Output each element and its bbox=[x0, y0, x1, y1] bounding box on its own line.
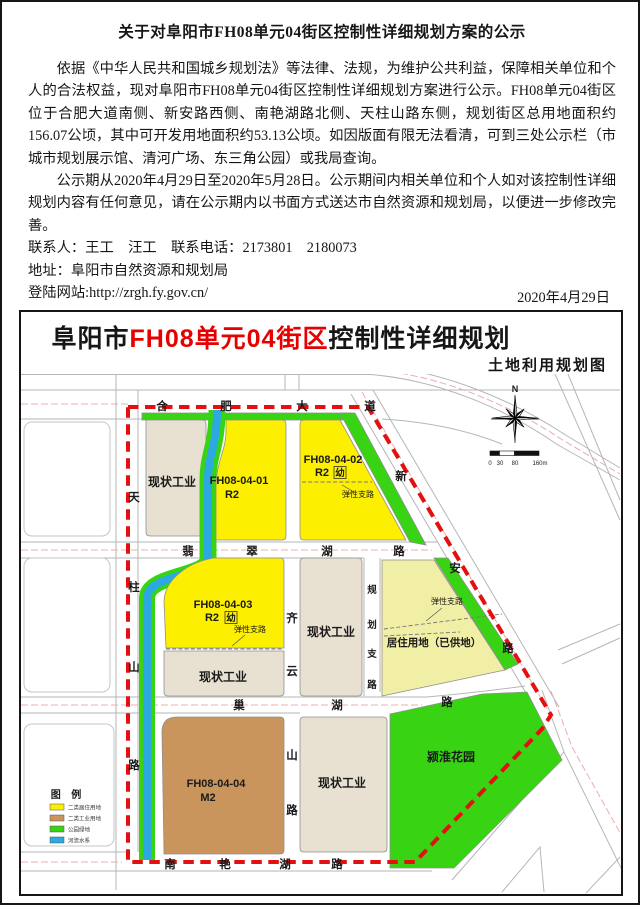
road-label-qiyunshan-road: 齐 bbox=[286, 611, 298, 625]
road-label-chaohu-road: 湖 bbox=[331, 698, 343, 712]
scale-bar: 03080160m bbox=[488, 451, 547, 467]
label-yinghuai-garden: 颍淮花园 bbox=[427, 749, 475, 764]
legend-label: 二类工业用地 bbox=[68, 815, 102, 823]
road-label-xinan-road: 安 bbox=[449, 561, 461, 575]
road-label-feicuihu-road: 翡 bbox=[182, 544, 194, 558]
legend-swatch bbox=[50, 826, 64, 832]
legend-title: 图 例 bbox=[51, 788, 86, 801]
legend-label: 二类居住用地 bbox=[68, 804, 102, 812]
public-notice-page: 关于对阜阳市FH08单元04街区控制性详细规划方案的公示 依据《中华人民共和国城… bbox=[0, 0, 640, 905]
compass-rose-icon: N bbox=[491, 384, 539, 443]
map-title-highlight: FH08单元04街区 bbox=[130, 325, 329, 353]
compass-north-label: N bbox=[512, 384, 519, 394]
road-label-tianzhushan-road: 山 bbox=[128, 660, 140, 674]
notice-title: 关于对阜阳市FH08单元04街区控制性详细规划方案的公示 bbox=[28, 20, 616, 42]
parcel-code-fh08-04-04: FH08-04-04 bbox=[187, 778, 247, 790]
road-label-hefei-avenue: 道 bbox=[364, 399, 376, 413]
map-title-prefix: 阜阳市 bbox=[52, 325, 130, 353]
road-label-tianzhushan-road: 天 bbox=[128, 491, 140, 504]
road-label-chaohu-road: 巢 bbox=[232, 698, 245, 712]
road-label-planned-branch-road: 支 bbox=[366, 648, 377, 660]
road-label-hefei-avenue: 肥 bbox=[220, 399, 232, 413]
scale-bar-segment bbox=[490, 451, 500, 456]
road-label-hefei-avenue: 大 bbox=[296, 399, 308, 413]
label-residential-supplied: 居住用地（已供地） bbox=[387, 636, 482, 649]
map-canvas: N 03080160m 图 例 二类居住用地二类工业用地公园绿地河流水系 合肥大… bbox=[21, 374, 621, 894]
road-label-nanyanhu-road: 艳 bbox=[219, 857, 231, 871]
website-line: 登陆网站:http://zrgh.fy.gov.cn/ bbox=[28, 282, 208, 304]
contact-line: 联系人：王工 汪工 联系电话：2173801 2180073 bbox=[28, 237, 616, 259]
label-existing-industry: 现状工业 bbox=[307, 624, 355, 639]
road-label-feicuihu-road: 路 bbox=[393, 544, 405, 558]
road-label-xinan-road: 路 bbox=[502, 641, 514, 655]
parcel-use-fh08-04-02: R2 bbox=[315, 467, 329, 479]
kindergarten-tag: 幼 bbox=[335, 467, 345, 479]
scale-bar-label: 0 bbox=[488, 461, 492, 467]
label-existing-industry: 现状工业 bbox=[318, 775, 366, 790]
road-label-qiyunshan-road: 路 bbox=[286, 803, 298, 817]
road-label-planned-branch-road: 规 bbox=[367, 584, 377, 596]
city-block bbox=[24, 422, 110, 536]
legend-label: 公园绿地 bbox=[68, 826, 91, 834]
parcel-yinghuai-garden[interactable] bbox=[390, 692, 562, 868]
road-label-qiyunshan-road: 山 bbox=[286, 748, 298, 762]
scale-bar-segment bbox=[515, 451, 540, 456]
road-label-tianzhushan-road: 路 bbox=[128, 758, 140, 772]
parcel-code-fh08-04-03: FH08-04-03 bbox=[194, 599, 253, 611]
road-label-planned-branch-road: 划 bbox=[367, 619, 377, 631]
legend-label: 河流水系 bbox=[68, 837, 91, 845]
legend-swatch bbox=[50, 837, 64, 843]
notice-date: 2020年4月29日 bbox=[517, 287, 616, 309]
parcel-code-fh08-04-02: FH08-04-02 bbox=[304, 454, 363, 466]
road-label-nanyanhu-road: 湖 bbox=[279, 857, 291, 871]
parcel-use-fh08-04-03: R2 bbox=[205, 612, 219, 624]
label-elastic-branch-road: 弹性支路 bbox=[431, 596, 463, 606]
city-block bbox=[24, 558, 110, 692]
road-label-hefei-avenue: 合 bbox=[156, 399, 168, 413]
parcel-code-fh08-04-01: FH08-04-01 bbox=[210, 475, 269, 487]
road-label-nanyanhu-road: 南 bbox=[164, 857, 176, 871]
road-label-feicuihu-road: 翠 bbox=[246, 545, 258, 558]
scale-bar-segment bbox=[500, 451, 515, 456]
legend-swatch bbox=[50, 804, 64, 810]
road-label-nanyanhu-road: 路 bbox=[331, 857, 343, 871]
map-title: 阜阳市FH08单元04街区控制性详细规划 bbox=[21, 319, 541, 355]
road-label-chaohu-road: 路 bbox=[441, 695, 453, 709]
parcel-use-fh08-04-04: M2 bbox=[200, 792, 215, 804]
address-line: 地址：阜阳市自然资源和规划局 bbox=[28, 260, 616, 282]
notice-paragraph-2: 公示期从2020年4月29日至2020年5月28日。公示期间内相关单位和个人如对… bbox=[28, 170, 616, 237]
notice-paragraph-1: 依据《中华人民共和国城乡规划法》等法律、法规，为维护公共利益，保障相关单位和个人… bbox=[28, 58, 616, 170]
map-title-suffix: 控制性详细规划 bbox=[328, 325, 510, 353]
notice-section: 关于对阜阳市FH08单元04街区控制性详细规划方案的公示 依据《中华人民共和国城… bbox=[2, 2, 640, 304]
label-elastic-branch-road: 弹性支路 bbox=[234, 624, 266, 634]
legend-swatch bbox=[50, 815, 64, 821]
scale-bar-label: 30 bbox=[497, 461, 504, 467]
kindergarten-tag: 幼 bbox=[226, 612, 236, 624]
label-existing-industry: 现状工业 bbox=[199, 669, 247, 684]
parcel-use-fh08-04-01: R2 bbox=[225, 489, 239, 501]
label-existing-industry: 现状工业 bbox=[148, 474, 196, 489]
land-use-map: 阜阳市FH08单元04街区控制性详细规划 土地利用规划图 bbox=[19, 310, 623, 896]
roadside-green-strip bbox=[142, 413, 352, 420]
road-label-planned-branch-road: 路 bbox=[367, 679, 377, 691]
scale-bar-label: 80 bbox=[512, 461, 519, 467]
road-label-xinan-road: 新 bbox=[395, 469, 407, 483]
road-label-feicuihu-road: 湖 bbox=[321, 544, 333, 558]
road-label-tianzhushan-road: 柱 bbox=[128, 580, 140, 594]
map-subtitle: 土地利用规划图 bbox=[488, 354, 607, 375]
road-label-qiyunshan-road: 云 bbox=[286, 665, 298, 678]
scale-bar-label: 160m bbox=[532, 461, 547, 467]
label-elastic-branch-road: 弹性支路 bbox=[342, 489, 374, 499]
